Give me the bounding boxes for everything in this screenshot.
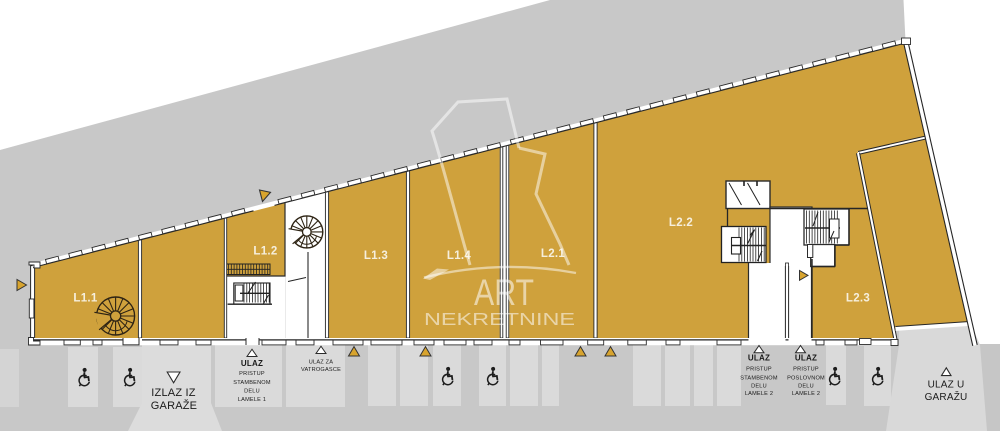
svg-text:LAMELE 1: LAMELE 1 [238, 397, 266, 403]
svg-text:L1.2: L1.2 [253, 246, 277, 258]
svg-text:ULAZ: ULAZ [795, 354, 817, 363]
svg-text:IZLAZ IZ: IZLAZ IZ [151, 387, 195, 399]
svg-text:VATROGASCE: VATROGASCE [301, 367, 341, 373]
svg-text:L1.1: L1.1 [73, 293, 98, 305]
svg-text:POSLOVNOM: POSLOVNOM [787, 375, 825, 381]
svg-text:STAMBENOM: STAMBENOM [233, 380, 271, 386]
svg-text:PRISTUP: PRISTUP [746, 367, 772, 373]
svg-text:DELU: DELU [751, 383, 767, 389]
svg-text:GARAŽU: GARAŽU [925, 390, 968, 403]
svg-text:LAMELE 2: LAMELE 2 [745, 391, 773, 397]
svg-text:L2.2: L2.2 [669, 217, 693, 229]
svg-text:ART: ART [474, 272, 534, 313]
svg-text:STAMBENOM: STAMBENOM [740, 375, 778, 381]
svg-text:ULAZ U: ULAZ U [928, 380, 965, 391]
svg-text:L1.3: L1.3 [364, 250, 388, 262]
svg-text:L2.3: L2.3 [846, 293, 870, 305]
svg-text:LAMELE 2: LAMELE 2 [792, 391, 820, 397]
svg-text:DELU: DELU [798, 383, 814, 389]
svg-text:PRISTUP: PRISTUP [239, 371, 265, 377]
svg-text:DELU: DELU [244, 389, 260, 395]
svg-text:ULAZ ZA: ULAZ ZA [309, 360, 333, 366]
svg-text:ULAZ: ULAZ [748, 354, 770, 363]
svg-text:ULAZ: ULAZ [241, 359, 263, 368]
svg-text:PRISTUP: PRISTUP [793, 367, 819, 373]
svg-text:GARAŽE: GARAŽE [151, 399, 197, 412]
svg-text:NEKRETNINE: NEKRETNINE [424, 309, 575, 329]
